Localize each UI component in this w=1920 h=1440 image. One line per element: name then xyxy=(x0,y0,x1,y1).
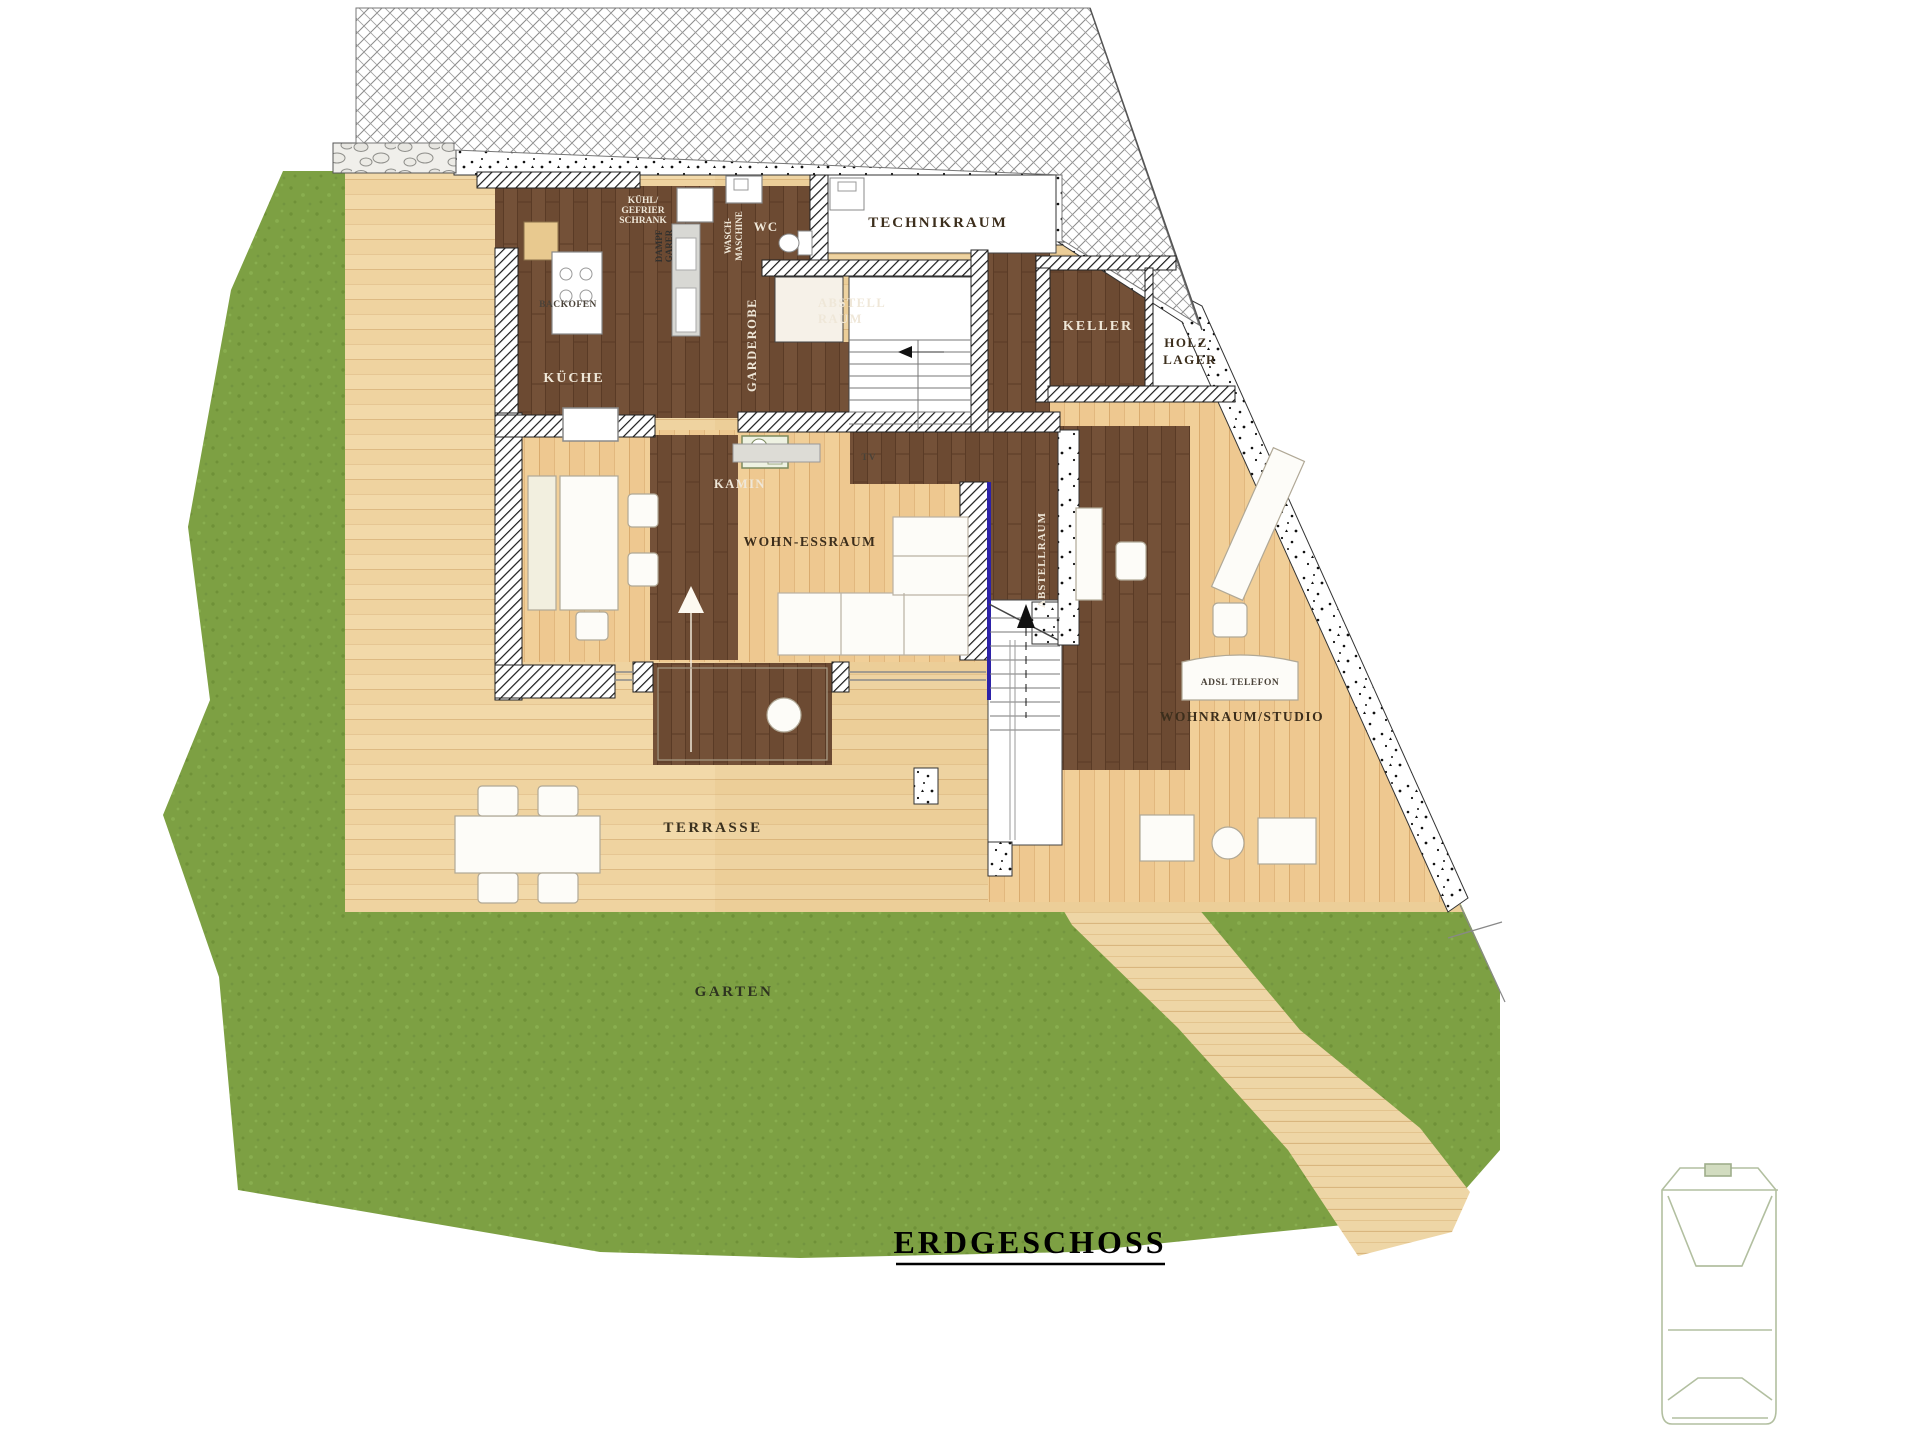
label-tv: TV xyxy=(861,453,876,463)
desk-chair-2 xyxy=(1213,603,1247,637)
label-dampf-2: GARER xyxy=(664,229,674,262)
label-kueche: KÜCHE xyxy=(543,369,604,386)
drawing-title: ERDGESCHOSS xyxy=(893,1224,1166,1264)
dining-table xyxy=(560,476,618,610)
label-holz-1: HOLZ xyxy=(1164,335,1208,350)
lounge-square xyxy=(1140,815,1194,861)
label-wohn-essraum: WOHN-ESSRAUM xyxy=(744,534,877,549)
retaining-wall xyxy=(333,143,456,173)
terrace-pier-2 xyxy=(914,768,938,804)
deck-round-table xyxy=(767,698,801,732)
outdoor-chair xyxy=(478,786,518,816)
label-keller: KELLER xyxy=(1063,319,1133,334)
lounge-square-2 xyxy=(1258,818,1316,864)
label-terrasse: TERRASSE xyxy=(663,820,762,836)
outdoor-chair xyxy=(538,873,578,903)
label-backofen: BACKOFEN xyxy=(539,300,597,310)
dining-bench xyxy=(528,476,556,610)
outdoor-chair xyxy=(478,873,518,903)
label-garderobe: GARDEROBE xyxy=(745,298,759,392)
label-kamin: KAMIN xyxy=(714,477,766,491)
glass-wall xyxy=(987,482,991,700)
dining-chair xyxy=(628,494,658,527)
studio-shelf xyxy=(1076,508,1102,600)
label-garten: GARTEN xyxy=(695,984,774,1000)
label-abstell-2: RAUM xyxy=(818,312,863,326)
tv-lowboard xyxy=(733,444,820,462)
terrace-pier xyxy=(988,842,1012,876)
deck-platform xyxy=(653,663,832,765)
stove-icon xyxy=(552,252,602,334)
label-dampf-1: DAMPF xyxy=(654,229,664,262)
kamin-corridor xyxy=(650,435,738,660)
dining-chair xyxy=(576,612,608,640)
label-technikraum: TECHNIKRAUM xyxy=(868,215,1008,231)
water-heater-icon xyxy=(830,178,864,210)
label-wohnraum-studio: WOHNRAUM/STUDIO xyxy=(1160,709,1324,724)
outdoor-chair xyxy=(538,786,578,816)
lounge-round-table xyxy=(1212,827,1244,859)
label-wasch-1: WASCH- xyxy=(723,218,733,254)
page-title: ERDGESCHOSS xyxy=(893,1224,1166,1260)
label-wc: WC xyxy=(754,219,778,234)
label-wasch-2: MASCHINE xyxy=(734,211,744,261)
label-abstell-1: ABSTELL xyxy=(818,296,886,310)
dining-chair xyxy=(628,553,658,586)
label-holz-2: LAGER xyxy=(1163,352,1217,367)
outdoor-table xyxy=(455,816,600,873)
fridge-icon xyxy=(677,188,713,222)
label-kuehl-2: GEFRIER xyxy=(621,206,664,216)
floor-plan-page: TECHNIKRAUM KELLER HOLZ LAGER WC ABSTELL… xyxy=(0,0,1920,1440)
desk-chair xyxy=(1116,542,1146,580)
label-abstellraum-vertical: ABSTELLRAUM xyxy=(1036,512,1048,608)
label-adsl-telefon: ADSL TELEFON xyxy=(1201,678,1279,688)
label-kuehl-3: SCHRANK xyxy=(619,216,667,226)
floor-plan-canvas: TECHNIKRAUM KELLER HOLZ LAGER WC ABSTELL… xyxy=(0,0,1920,1440)
car-outline xyxy=(1662,1164,1778,1424)
